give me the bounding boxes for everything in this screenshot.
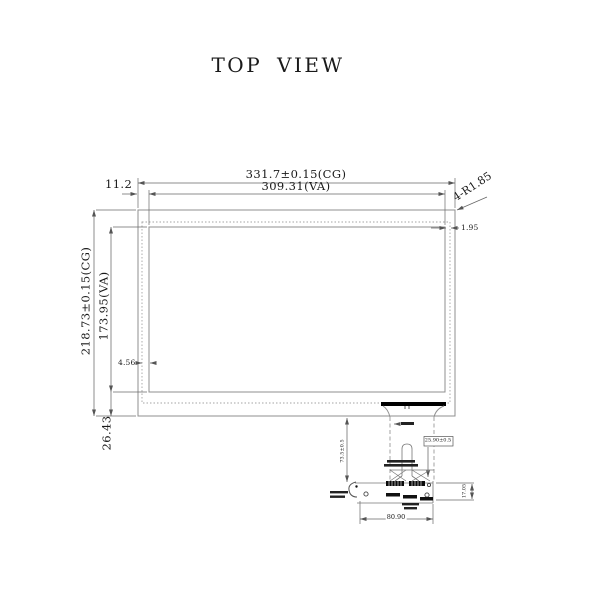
locating-dot bbox=[355, 485, 357, 487]
drawing-title: TOP VIEW bbox=[211, 55, 344, 75]
dim-fpc-width-label: 25.90±0.5 bbox=[425, 439, 451, 444]
bonding-bar bbox=[381, 402, 446, 406]
dim-bottom-offset-label: 26.43 bbox=[101, 416, 113, 451]
dim-va-height-label: 173.95(VA) bbox=[98, 271, 110, 340]
sensor-dotted-outline bbox=[142, 222, 450, 403]
cover-glass-outline bbox=[138, 210, 455, 416]
bonding-bar-ticks bbox=[405, 406, 409, 409]
dimension-lines bbox=[94, 183, 487, 519]
extension-lines bbox=[96, 178, 474, 524]
dim-left-offset-label: 11.2 bbox=[105, 179, 132, 191]
connector-left-bracket bbox=[349, 482, 357, 497]
dim-connector-height-label: 17.05 bbox=[463, 484, 468, 498]
dim-fpc-length-label: 73.5±0.5 bbox=[341, 439, 346, 462]
dim-right-border-label: 1.95 bbox=[461, 224, 479, 232]
tail-neck-curves bbox=[383, 406, 444, 417]
dim-connector-width-label: 80.90 bbox=[386, 514, 407, 521]
contact-pad-right bbox=[409, 481, 425, 486]
viewing-area-outline bbox=[149, 227, 445, 392]
dim-va-width-label: 309.31(VA) bbox=[261, 181, 330, 193]
dim-left-border-label: 4.56 bbox=[118, 359, 136, 367]
tail-slot-flare bbox=[395, 476, 419, 481]
connector-assembly bbox=[349, 481, 433, 503]
engineering-drawing-top-view: TOP VIEW 331.7±0.15(CG) 309.31(VA) 11.2 … bbox=[0, 0, 600, 600]
dim-cg-height-label: 218.73±0.15(CG) bbox=[80, 247, 92, 355]
